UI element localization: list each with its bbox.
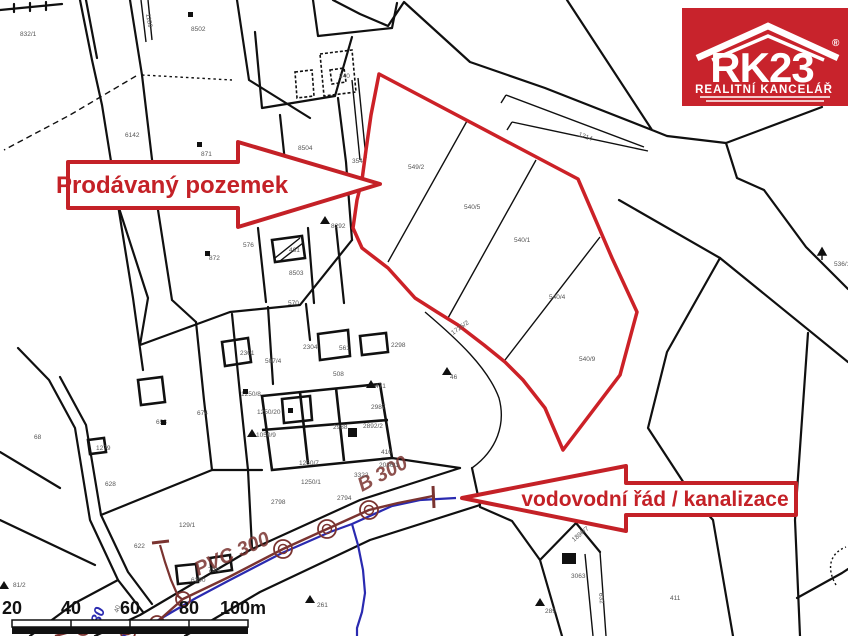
sold-parcel-outline: [353, 74, 637, 450]
parcel-number-label: 540/1: [514, 237, 531, 244]
parcel-number-label: 471: [375, 383, 386, 390]
parcel-number-label: 1250/1: [301, 479, 321, 486]
parcel-number-label: 8504: [298, 145, 313, 152]
left-boundary-double: [86, 0, 97, 58]
parcel-number-label: 872: [209, 255, 220, 262]
scale-bar-bottom: [12, 627, 248, 634]
scale-label: 20: [2, 598, 22, 618]
utilities-label: vodovodní řád / kanalizace: [521, 488, 788, 511]
building: [360, 333, 388, 355]
parcel-number-label: 410: [381, 449, 392, 456]
parcel-number-label: 81/2: [13, 582, 26, 589]
house-symbol: [197, 142, 202, 147]
building: [282, 396, 312, 423]
parcel-number-label: 289: [545, 608, 556, 615]
parcel-number-label: 1050/9: [256, 432, 276, 439]
narrow-strip-left-of-parcel: [352, 78, 366, 160]
rk23-logo: RK23 ® REALITNÍ KANCELÁŘ: [682, 8, 848, 106]
parcel-number-label: 540/5: [464, 204, 481, 211]
parcel-number-label: 2036/1: [379, 462, 399, 469]
pipe-label: PVC 300: [191, 528, 273, 581]
parcel-number-label: 1250/7: [299, 460, 319, 467]
parcel-number-label: 411: [670, 595, 681, 602]
house-symbol: [188, 12, 193, 17]
parcel-number-label: 1214: [577, 131, 593, 143]
building: [138, 377, 165, 405]
tree-symbol: [818, 248, 826, 260]
scale-label: 60: [120, 598, 140, 618]
parcel-number-label: 1189: [144, 13, 153, 28]
water-line: [122, 498, 456, 636]
parcel-number-label: 622: [134, 543, 145, 550]
house-symbol: [288, 408, 293, 413]
parcel-number-label: 570: [288, 300, 299, 307]
top-long-diagonals: [333, 0, 726, 143]
parcel-number-label: 3063: [571, 573, 586, 580]
cadastral-map-svg: PVC 300B 30080832/1118985026142871240850…: [0, 0, 848, 636]
parcel-dividers-in-sold-area: [388, 121, 600, 360]
parcel-number-label: 2987: [371, 404, 386, 411]
parcel-number-label: 240: [339, 73, 350, 80]
right-lower-boundary2: [795, 333, 848, 636]
cadastral-map-image: PVC 300B 30080832/1118985026142871240850…: [0, 0, 848, 636]
road-edge-marks: [501, 95, 648, 151]
parcel-number-label: 871: [201, 151, 212, 158]
top-left-boundary: [0, 2, 62, 12]
sold-parcel-callout: Prodávaný pozemek: [56, 142, 380, 227]
parcel-number-label: 536/1: [834, 261, 848, 268]
house-symbol: [205, 251, 210, 256]
parcel-number-label: 8503: [289, 270, 304, 277]
parcel-number-label: 832/1: [20, 31, 37, 38]
parcel-number-label: 8502: [191, 26, 206, 33]
triangle-symbol: [320, 216, 330, 224]
house-symbol: [243, 389, 248, 394]
building-solid: [348, 428, 357, 437]
parcel-number-label: 2298: [391, 342, 406, 349]
parcel-number-label: 261: [317, 602, 328, 609]
parcel-number-label: 2794: [337, 495, 352, 502]
upper-mid-boundary2: [313, 0, 397, 36]
parcel-number-label: 8292: [331, 223, 346, 230]
scale-label: 100m: [220, 598, 266, 618]
right-lower-boundary: [648, 258, 733, 636]
triangle-symbol: [535, 598, 545, 606]
sewer-end-caps: [152, 486, 434, 543]
triangle-symbol: [305, 595, 315, 603]
parcel-number-label: 2988: [333, 424, 348, 431]
parcel-number-label: 6142: [125, 132, 140, 139]
parcel-number-label: 507/4: [265, 358, 282, 365]
parcel-number-label: 549/2: [408, 164, 425, 171]
parcel-number-label: 6390: [191, 577, 206, 584]
parcel-number-label: 632: [597, 593, 605, 605]
parcel-number-label: 3322: [354, 472, 369, 479]
village-verticals: [196, 304, 310, 470]
parcel-number-label: 79/1: [208, 567, 221, 574]
parcel-number-label: 68: [34, 434, 42, 441]
parcel-number-label: 540/9: [579, 356, 596, 363]
triangle-symbol: [0, 581, 9, 589]
narrow-lane: [18, 348, 152, 612]
parcel-number-label: 1279: [96, 445, 111, 452]
house-symbol: [161, 420, 166, 425]
parcel-number-label: 628: [105, 481, 116, 488]
top-right-boundaries: [726, 107, 848, 289]
scale-label: 40: [61, 598, 81, 618]
parcel-number-label: 461: [289, 247, 300, 254]
water-line-branch: [352, 524, 365, 636]
parcel-number-label: 674: [197, 410, 208, 417]
village-lower-links: [101, 458, 480, 548]
dashed-boundary: [4, 76, 136, 150]
parcel-number-label: 2798: [271, 499, 286, 506]
parcel-number-label: 2304: [303, 344, 318, 351]
scale-bar: [12, 620, 248, 634]
fence-line: [142, 75, 232, 80]
parcel-number-label: 508: [333, 371, 344, 378]
village-top-boundary: [118, 205, 352, 345]
sold-parcel-label: Prodávaný pozemek: [56, 172, 289, 199]
curved-parcel-line: [425, 312, 501, 468]
parcel-number-label: 129/1: [179, 522, 196, 529]
parcel-number-label: 561: [339, 345, 350, 352]
parcel-number-label: 540/4: [549, 294, 566, 301]
parcel-number-label: 2301: [240, 350, 255, 357]
building-dashed: [295, 70, 314, 98]
parcel-number-label: 354: [352, 158, 363, 165]
bottom-middle-boundaries: [480, 507, 600, 636]
upper-mid-boundary: [237, 0, 310, 118]
parcel-number-label: 576: [243, 242, 254, 249]
triangle-symbol: [442, 367, 452, 375]
scale-label: 80: [179, 598, 199, 618]
logo-tagline: REALITNÍ KANCELÁŘ: [695, 83, 833, 96]
registered-mark: ®: [832, 38, 840, 49]
parcel-number-label: 2892/2: [363, 423, 383, 430]
parcel-number-label: 46: [450, 374, 458, 381]
right-long-diagonal: [619, 200, 848, 362]
parcel-number-label: 1250/20: [257, 409, 281, 416]
building-solid: [562, 553, 576, 564]
